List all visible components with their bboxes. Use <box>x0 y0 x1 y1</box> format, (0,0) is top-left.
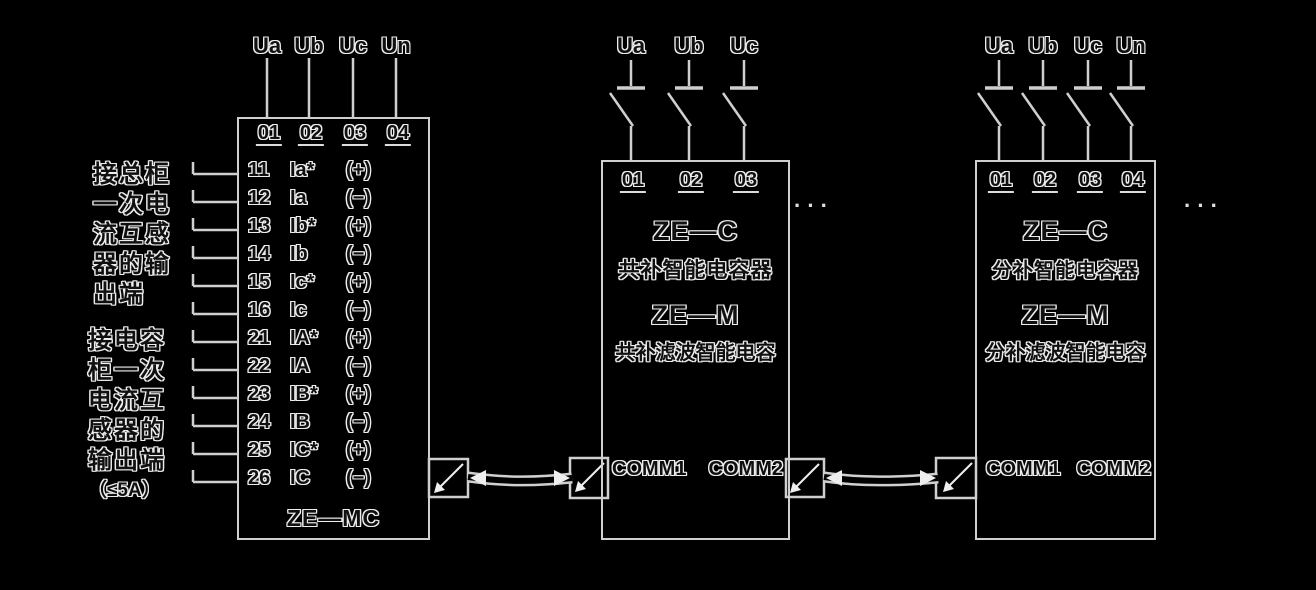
phase-label-ub: Ub <box>294 33 323 59</box>
note-line: 流互感 <box>93 220 171 250</box>
common-comp-capacitor-block: 01 02 03 ZE—C 共补智能电容器 ZE—M 共补滤波智能电容 COMM… <box>601 160 790 540</box>
left-phase-wires <box>267 58 396 117</box>
note-line: 接电容 <box>88 326 166 356</box>
phase-label-uc: Uc <box>339 33 367 59</box>
terminal-row: 25IC*(+) <box>248 436 412 464</box>
signal-name: IA* <box>290 327 346 350</box>
terminal-03: 03 <box>733 170 759 193</box>
signal-name: IB <box>290 411 346 434</box>
ct-note-capacitor-cabinet: 接电容 柜一次 电流互 感器的 输出端 （≤5A） <box>88 326 166 506</box>
comm1-port-label: COMM1 <box>986 458 1060 481</box>
comm1-port-label: COMM1 <box>612 458 686 481</box>
comm-port-row: COMM1 COMM2 <box>977 458 1154 481</box>
phase-label-ub: Ub <box>1028 33 1057 59</box>
signal-name: Ia <box>290 187 346 210</box>
terminal-01: 01 <box>620 170 646 193</box>
signal-name: Ic <box>290 299 346 322</box>
terminal-number: 11 <box>248 159 290 182</box>
terminal-number: 12 <box>248 187 290 210</box>
model-ze-m-description: 分补滤波智能电容 <box>977 336 1154 365</box>
wiring-diagram: Ua Ub Uc Un Ua Ub Uc Ua Ub Uc Un 接总柜 一次电… <box>0 0 1316 590</box>
signal-name: IC <box>290 467 346 490</box>
terminal-01: 01 <box>256 123 282 146</box>
terminal-row: 11Ia*(+) <box>248 156 412 184</box>
terminal-number: 13 <box>248 215 290 238</box>
polarity: (+) <box>346 271 412 294</box>
terminal-number: 25 <box>248 439 290 462</box>
terminal-row: 23IB*(+) <box>248 380 412 408</box>
polarity: (+) <box>346 439 412 462</box>
polarity: (+) <box>346 327 412 350</box>
terminal-row: 21IA*(+) <box>248 324 412 352</box>
terminal-number: 16 <box>248 299 290 322</box>
signal-name: Ia* <box>290 159 346 182</box>
terminal-row: 12Ia(−) <box>248 184 412 212</box>
ze-mc-controller-block: 01 02 03 04 11Ia*(+) 12Ia(−) 13Ib*(+) 14… <box>237 117 430 540</box>
note-line: 一次电 <box>93 190 171 220</box>
controller-model-label: ZE—MC <box>239 505 428 532</box>
comm2-port-label: COMM2 <box>1077 458 1151 481</box>
terminal-row: 26IC(−) <box>248 464 412 492</box>
split-comp-capacitor-block: 01 02 03 04 ZE—C 分补智能电容器 ZE—M 分补滤波智能电容 C… <box>975 160 1156 540</box>
polarity: (−) <box>346 355 412 378</box>
terminal-row: 16Ic(−) <box>248 296 412 324</box>
comm2-port-label: COMM2 <box>709 458 783 481</box>
note-current-rating: （≤5A） <box>88 476 166 506</box>
phase-label-uc: Uc <box>730 33 758 59</box>
terminal-03: 03 <box>1077 170 1103 193</box>
phase-label-ua: Ua <box>617 33 645 59</box>
signal-name: IA <box>290 355 346 378</box>
note-line: 感器的 <box>88 416 166 446</box>
polarity: (−) <box>346 243 412 266</box>
model-ze-c: ZE—C <box>977 216 1154 247</box>
terminal-01: 01 <box>988 170 1014 193</box>
right-switch-symbols <box>978 60 1145 160</box>
terminal-number: 22 <box>248 355 290 378</box>
note-line: 接总柜 <box>93 160 171 190</box>
comm-cable-connector-a <box>429 458 608 498</box>
more-units-ellipsis: ··· <box>794 193 834 219</box>
ct-terminal-stubs <box>193 174 237 482</box>
polarity: (−) <box>346 187 412 210</box>
ct-note-main-cabinet: 接总柜 一次电 流互感 器的输 出端 <box>93 160 171 310</box>
phase-label-ua: Ua <box>253 33 281 59</box>
model-ze-c-description: 分补智能电容器 <box>977 254 1154 283</box>
polarity: (+) <box>346 383 412 406</box>
phase-label-un: Un <box>1116 33 1145 59</box>
terminal-02: 02 <box>298 123 324 146</box>
model-ze-m-description: 共补滤波智能电容 <box>603 336 788 365</box>
terminal-row: 24IB(−) <box>248 408 412 436</box>
terminal-number: 24 <box>248 411 290 434</box>
note-line: 输出端 <box>88 446 166 476</box>
terminal-row: 13Ib*(+) <box>248 212 412 240</box>
polarity: (+) <box>346 215 412 238</box>
middle-switch-symbols <box>610 60 758 160</box>
polarity: (−) <box>346 467 412 490</box>
terminal-02: 02 <box>678 170 704 193</box>
model-ze-m: ZE—M <box>603 300 788 331</box>
comm-cable-connector-b <box>786 458 976 498</box>
ct-terminal-rows: 11Ia*(+) 12Ia(−) 13Ib*(+) 14Ib(−) 15Ic*(… <box>248 156 412 492</box>
note-line: 器的输 <box>93 250 171 280</box>
note-line: 柜一次 <box>88 356 166 386</box>
terminal-row: 22IA(−) <box>248 352 412 380</box>
terminal-row: 15Ic*(+) <box>248 268 412 296</box>
polarity: (−) <box>346 411 412 434</box>
terminal-row: 14Ib(−) <box>248 240 412 268</box>
terminal-number: 15 <box>248 271 290 294</box>
terminal-04: 04 <box>1120 170 1146 193</box>
phase-label-ub: Ub <box>674 33 703 59</box>
terminal-number: 23 <box>248 383 290 406</box>
polarity: (+) <box>346 159 412 182</box>
polarity: (−) <box>346 299 412 322</box>
terminal-number: 26 <box>248 467 290 490</box>
note-line: 电流互 <box>88 386 166 416</box>
terminal-04: 04 <box>385 123 411 146</box>
terminal-number: 21 <box>248 327 290 350</box>
signal-name: IB* <box>290 383 346 406</box>
model-ze-m: ZE—M <box>977 300 1154 331</box>
model-ze-c: ZE—C <box>603 216 788 247</box>
note-line: 出端 <box>93 280 171 310</box>
phase-label-uc: Uc <box>1074 33 1102 59</box>
terminal-02: 02 <box>1032 170 1058 193</box>
comm-port-row: COMM1 COMM2 <box>603 458 788 481</box>
terminal-03: 03 <box>342 123 368 146</box>
terminal-number: 14 <box>248 243 290 266</box>
signal-name: Ib <box>290 243 346 266</box>
phase-label-ua: Ua <box>985 33 1013 59</box>
model-ze-c-description: 共补智能电容器 <box>603 254 788 284</box>
signal-name: Ib* <box>290 215 346 238</box>
phase-label-un: Un <box>381 33 410 59</box>
signal-name: IC* <box>290 439 346 462</box>
signal-name: Ic* <box>290 271 346 294</box>
more-units-ellipsis: ··· <box>1184 193 1224 219</box>
